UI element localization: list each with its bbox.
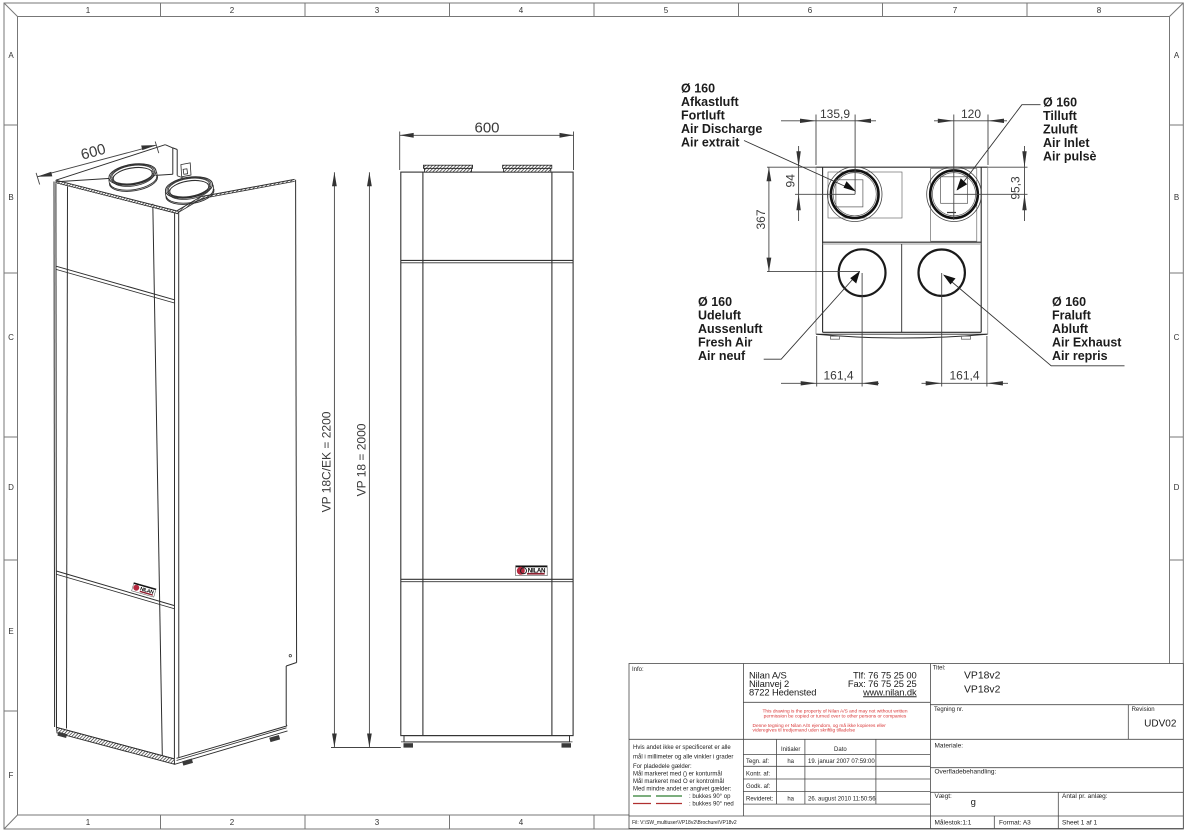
svg-text:B: B xyxy=(8,193,13,202)
svg-text:C: C xyxy=(8,333,14,342)
svg-text:Antal pr. anlæg:: Antal pr. anlæg: xyxy=(1062,793,1108,800)
svg-text:A: A xyxy=(8,51,14,60)
svg-text:Overfladebehandling:: Overfladebehandling: xyxy=(935,769,997,776)
svg-text:4: 4 xyxy=(519,818,524,827)
svg-text:D: D xyxy=(8,483,14,492)
svg-text:7: 7 xyxy=(953,6,958,15)
svg-text:: bukkes 90° ned: : bukkes 90° ned xyxy=(689,802,734,808)
svg-text:C: C xyxy=(1174,333,1180,342)
svg-text:Titel:: Titel: xyxy=(933,666,946,672)
svg-text:2: 2 xyxy=(230,6,235,15)
svg-text:4: 4 xyxy=(519,6,524,15)
svg-text:Materiale:: Materiale: xyxy=(935,743,964,750)
svg-text:ha: ha xyxy=(787,797,794,803)
svg-text:5: 5 xyxy=(664,6,669,15)
svg-text:2: 2 xyxy=(230,818,235,827)
svg-text:3: 3 xyxy=(375,818,380,827)
svg-text:D: D xyxy=(1174,483,1180,492)
svg-text:ha: ha xyxy=(787,759,794,765)
svg-text:26. august 2010 11:50:56: 26. august 2010 11:50:56 xyxy=(808,797,876,803)
svg-text:Info:: Info: xyxy=(632,667,644,673)
svg-text:g: g xyxy=(971,797,976,808)
svg-text:Revision: Revision xyxy=(1132,707,1155,713)
svg-text:Godk. af:: Godk. af: xyxy=(746,784,771,790)
svg-text:Fil: V:\SW_multiuser\VP18v2\Br: Fil: V:\SW_multiuser\VP18v2\Brochure\VP1… xyxy=(632,820,737,826)
svg-text:95,3: 95,3 xyxy=(1009,176,1023,200)
svg-text:B: B xyxy=(1174,193,1179,202)
svg-text:1: 1 xyxy=(86,6,91,15)
svg-text:8: 8 xyxy=(1097,6,1102,15)
svg-text:367: 367 xyxy=(754,209,768,229)
svg-text:Vægt:: Vægt: xyxy=(935,793,953,800)
svg-text:Hvis andet ikke er specificere: Hvis andet ikke er specificeret er alle xyxy=(633,745,731,751)
svg-text:8722 Hedensted: 8722 Hedensted xyxy=(749,686,816,697)
svg-text:3: 3 xyxy=(375,6,380,15)
svg-text:F: F xyxy=(9,771,14,780)
svg-text:161,4: 161,4 xyxy=(949,369,979,383)
svg-text:permission be copied or turned: permission be copied or turned over to o… xyxy=(764,713,907,719)
svg-text:Revideret:: Revideret: xyxy=(746,797,774,803)
svg-text:VP 18 = 2000: VP 18 = 2000 xyxy=(355,423,369,496)
svg-text:Mål markeret med O er kontrolm: Mål markeret med O er kontrolmål xyxy=(633,778,724,785)
svg-text:1: 1 xyxy=(86,818,91,827)
svg-text:A: A xyxy=(1174,51,1180,60)
svg-text:mål i millimeter og alle vinkl: mål i millimeter og alle vinkler i grade… xyxy=(633,754,733,761)
svg-text:Tegn. af:: Tegn. af: xyxy=(746,759,769,765)
svg-text:: bukkes 90° op: : bukkes 90° op xyxy=(689,794,731,800)
svg-text:600: 600 xyxy=(474,119,499,136)
svg-text:Tegning nr.: Tegning nr. xyxy=(934,707,964,713)
svg-text:UDV02: UDV02 xyxy=(1144,719,1177,730)
svg-text:19. januar 2007 07:59:00: 19. januar 2007 07:59:00 xyxy=(808,759,875,765)
svg-text:Format: A3: Format: A3 xyxy=(999,820,1031,827)
svg-text:Mål markeret med () er konturm: Mål markeret med () er konturmål xyxy=(633,771,722,778)
svg-text:Sheet 1 af 1: Sheet 1 af 1 xyxy=(1062,820,1097,827)
svg-text:135,9: 135,9 xyxy=(820,107,850,121)
svg-text:Med mindre andet er angivet gæ: Med mindre andet er angivet gælder: xyxy=(633,787,732,793)
svg-text:VP18v2: VP18v2 xyxy=(964,671,1001,682)
svg-text:161,4: 161,4 xyxy=(823,369,853,383)
svg-text:VP18v2: VP18v2 xyxy=(964,685,1001,696)
svg-text:Initialer: Initialer xyxy=(781,747,800,753)
svg-text:E: E xyxy=(8,627,13,636)
svg-text:www.nilan.dk: www.nilan.dk xyxy=(862,686,917,697)
svg-text:Kontr. af:: Kontr. af: xyxy=(746,772,770,778)
svg-text:Målestok:1:1: Målestok:1:1 xyxy=(935,819,972,827)
svg-text:Dato: Dato xyxy=(834,747,847,753)
svg-text:94: 94 xyxy=(784,174,798,188)
svg-text:VP 18C/EK = 2200: VP 18C/EK = 2200 xyxy=(320,411,334,512)
svg-text:For pladedele gælder:: For pladedele gælder: xyxy=(633,764,692,770)
svg-text:6: 6 xyxy=(808,6,813,15)
svg-text:120: 120 xyxy=(961,107,981,121)
svg-text:videregives til tredjemand ude: videregives til tredjemand uden skriftli… xyxy=(753,728,856,734)
